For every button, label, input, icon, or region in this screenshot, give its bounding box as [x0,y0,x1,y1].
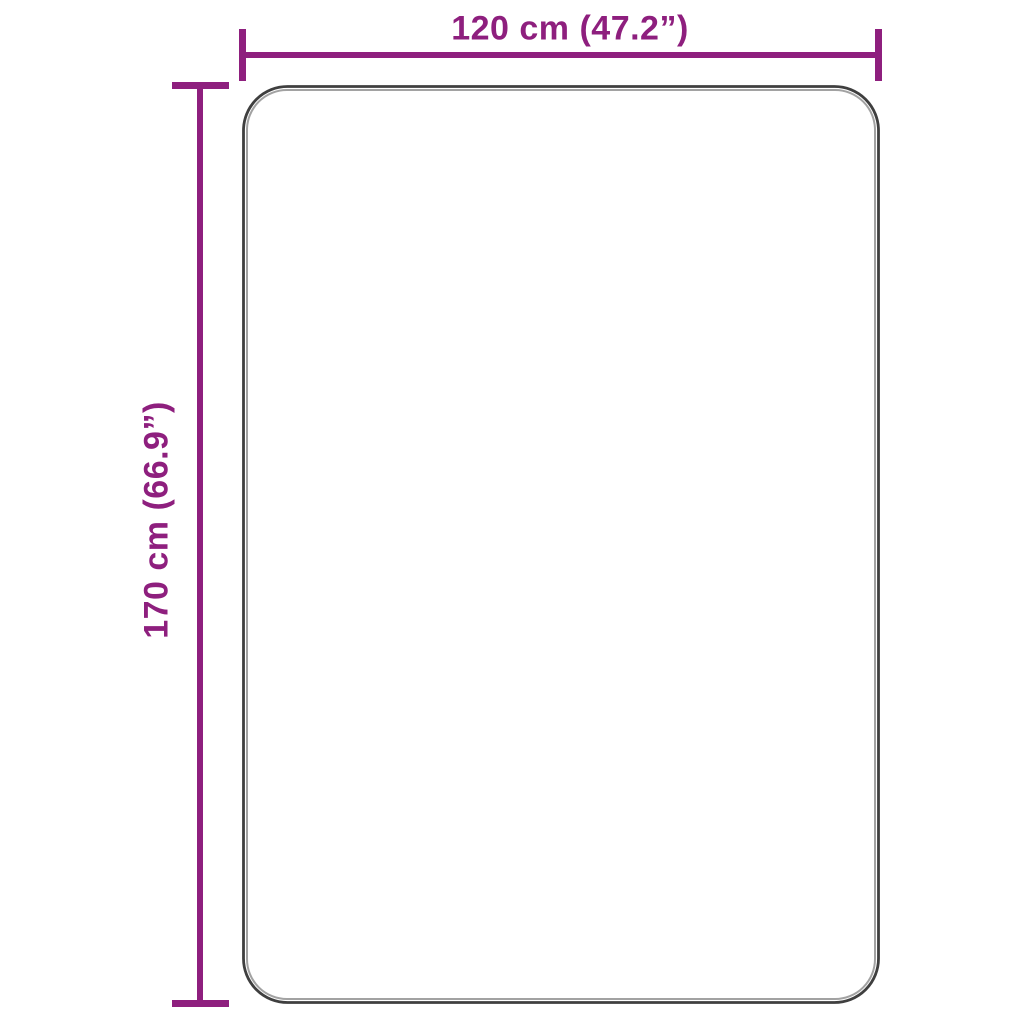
rug-outline-outer-stroke [244,87,879,1003]
height-dimension-line [197,85,203,1005]
height-dimension-label: 170 cm (66.9”) [138,401,177,639]
width-dimension-tick-right [875,29,882,81]
height-dimension-tick-bottom [172,1000,229,1007]
dimension-diagram: 120 cm (47.2”) 170 cm (66.9”) [0,0,1024,1024]
width-dimension-tick-left [239,29,246,81]
height-dimension-tick-top [172,82,229,89]
width-dimension-line [242,52,879,58]
width-dimension-label: 120 cm (47.2”) [451,10,689,49]
